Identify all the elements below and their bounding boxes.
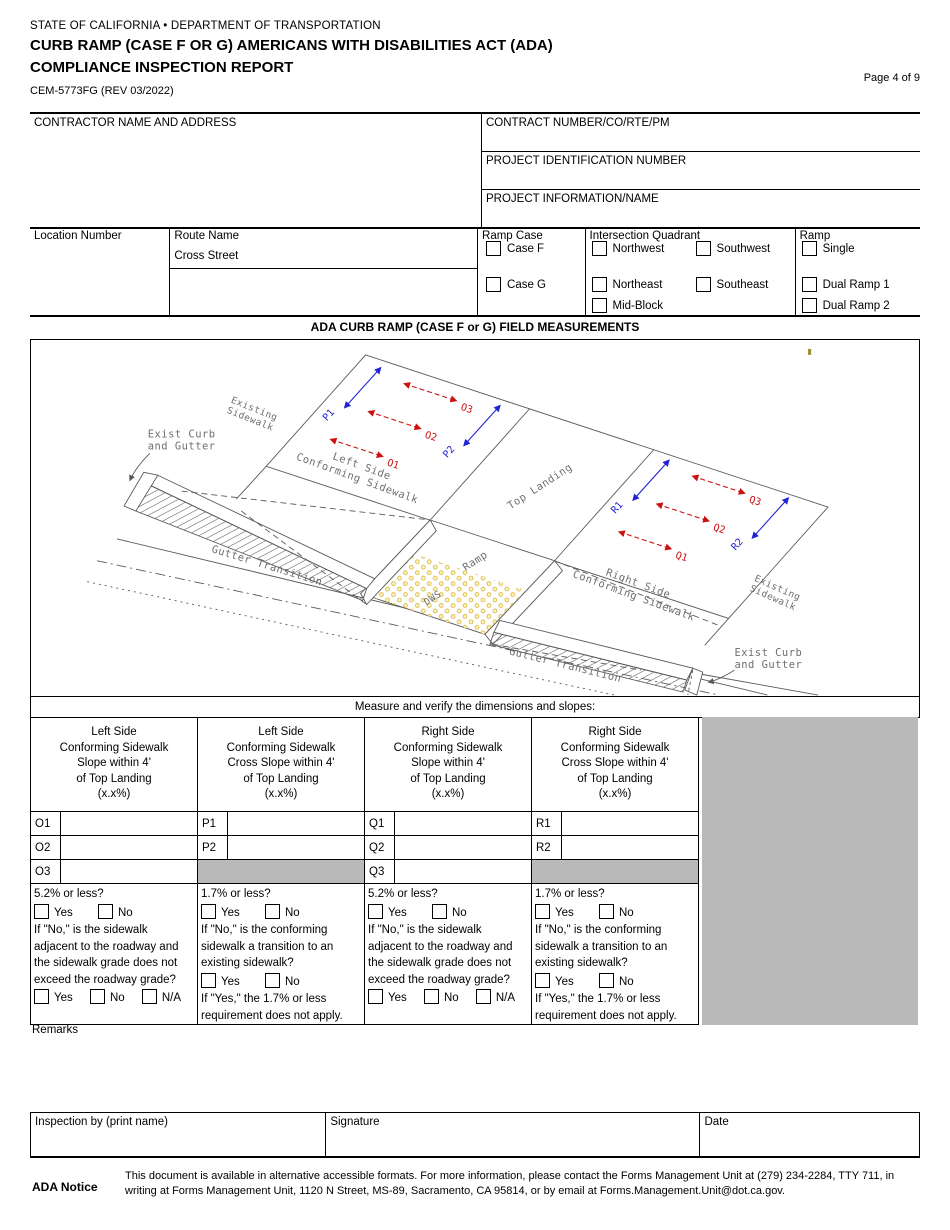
question-cell-right-cross: 1.7% or less? Yes No If "No," is the con… [532,884,698,1024]
row-label-q3: Q3 [365,860,394,883]
measurement-input-p2[interactable] [228,836,364,859]
project-id-field[interactable] [486,167,916,181]
measurement-input-o1[interactable] [61,812,197,835]
remarks-label: Remarks [32,1024,78,1036]
left-cross-q2-no-checkbox[interactable] [265,973,280,988]
right-cross-no-checkbox[interactable] [599,904,614,919]
inspection-by-label: Inspection by (print name) [35,1116,321,1128]
ramp-case-label: Ramp Case [478,227,585,242]
right-slope-q2-yes-checkbox[interactable] [368,989,383,1004]
southeast-label: Southeast [717,279,769,291]
form-title-line1: CURB RAMP (CASE F OR G) AMERICANS WITH D… [30,37,553,54]
southeast-checkbox[interactable] [696,277,711,292]
section-title: ADA CURB RAMP (CASE F or G) FIELD MEASUR… [0,320,950,334]
question-cell-left-cross: 1.7% or less? Yes No If "No," is the con… [198,884,364,1024]
question-text: If "No," is the conforming sidewalk a tr… [535,922,695,972]
measurement-input-r2[interactable] [562,836,698,859]
row-label-q1: Q1 [365,812,394,835]
contract-number-label: CONTRACT NUMBER/CO/RTE/PM [486,117,916,129]
single-label: Single [823,243,855,255]
page-number: Page 4 of 9 [864,72,920,84]
left-cross-no-checkbox[interactable] [265,904,280,919]
dual-ramp-1-label: Dual Ramp 1 [823,279,890,291]
date-field[interactable] [704,1128,915,1148]
dual-ramp-2-checkbox[interactable] [802,298,817,313]
agency-line: STATE OF CALIFORNIA • DEPARTMENT OF TRAN… [30,20,381,32]
question-text: 5.2% or less? [34,886,194,903]
checkbox-dual-ramp-2[interactable]: Dual Ramp 2 [802,298,890,313]
measurement-input-q1[interactable] [395,812,531,835]
left-cross-yes-checkbox[interactable] [201,904,216,919]
row-label-r1: R1 [532,812,561,835]
checkbox-northeast[interactable]: Northeast [592,277,663,292]
route-cross-divider [170,268,477,269]
measurement-input-o2[interactable] [61,836,197,859]
artifact-mark [808,349,811,355]
cross-street-label: Cross Street [170,245,477,267]
case-f-checkbox[interactable] [486,241,501,256]
dual-ramp-2-label: Dual Ramp 2 [823,300,890,312]
mid-block-label: Mid-Block [613,300,663,312]
quadrant-label: Intersection Quadrant [586,227,795,242]
col-header-left-slope: Left Side Conforming Sidewalk Slope with… [31,718,197,811]
case-g-checkbox[interactable] [486,277,501,292]
row-label-o1: O1 [31,812,60,835]
project-info-label: PROJECT INFORMATION/NAME [486,193,916,205]
col-header-right-cross: Right Side Conforming Sidewalk Cross Slo… [532,718,698,811]
left-slope-no-checkbox[interactable] [98,904,113,919]
checkbox-southeast[interactable]: Southeast [696,277,769,292]
form-title-line2: COMPLIANCE INSPECTION REPORT [30,59,293,76]
checkbox-mid-block[interactable]: Mid-Block [592,298,663,313]
project-info-field[interactable] [486,205,916,219]
row-label-p2: P2 [198,836,227,859]
row-label-q2: Q2 [365,836,394,859]
form-number: CEM-5773FG (REV 03/2022) [30,85,174,97]
question-text: 1.7% or less? [535,886,695,903]
left-slope-q2-yes-checkbox[interactable] [34,989,49,1004]
date-label: Date [704,1116,915,1128]
northeast-label: Northeast [613,279,663,291]
checkbox-single[interactable]: Single [802,241,855,256]
project-id-label: PROJECT IDENTIFICATION NUMBER [486,155,916,167]
right-cross-q2-no-checkbox[interactable] [599,973,614,988]
question-text: 1.7% or less? [201,886,361,903]
checkbox-dual-ramp-1[interactable]: Dual Ramp 1 [802,277,890,292]
svg-text:and Gutter: and Gutter [148,440,216,452]
inspection-by-field[interactable] [35,1128,321,1148]
remarks-field[interactable] [30,1040,920,1110]
checkbox-case-f[interactable]: Case F [486,241,544,256]
right-slope-yes-checkbox[interactable] [368,904,383,919]
signature-table: Inspection by (print name) Signature Dat… [30,1112,920,1158]
col-header-right-slope: Right Side Conforming Sidewalk Slope wit… [365,718,531,811]
southwest-checkbox[interactable] [696,241,711,256]
exist-curb-left-label: Exist Curb [148,428,216,440]
left-cross-q2-yes-checkbox[interactable] [201,973,216,988]
col-header-left-cross: Left Side Conforming Sidewalk Cross Slop… [198,718,364,811]
row-label-r2: R2 [532,836,561,859]
checkbox-northwest[interactable]: Northwest [592,241,665,256]
question-note: If "Yes," the 1.7% or less requirement d… [201,991,361,1024]
disabled-panel [702,717,918,1025]
contractor-name-field[interactable] [34,129,477,209]
measurement-input-r1[interactable] [562,812,698,835]
mid-block-checkbox[interactable] [592,298,607,313]
row-label-o3: O3 [31,860,60,883]
northwest-checkbox[interactable] [592,241,607,256]
left-slope-q2-na-checkbox[interactable] [142,989,157,1004]
row-label-o2: O2 [31,836,60,859]
right-slope-q2-no-checkbox[interactable] [424,989,439,1004]
exist-curb-right-label: Exist Curb [734,647,802,659]
route-name-label: Route Name [170,227,477,245]
right-slope-q2-na-checkbox[interactable] [476,989,491,1004]
northeast-checkbox[interactable] [592,277,607,292]
measure-instruction: Measure and verify the dimensions and sl… [30,696,920,718]
disabled-cell-r3 [532,860,698,883]
question-note: If "Yes," the 1.7% or less requirement d… [535,991,695,1024]
northwest-label: Northwest [613,243,665,255]
location-number-label: Location Number [34,230,165,242]
checkbox-southwest[interactable]: Southwest [696,241,771,256]
case-f-label: Case F [507,243,544,255]
case-g-label: Case G [507,279,546,291]
disabled-cell-p3 [198,860,364,883]
right-cross-yes-checkbox[interactable] [535,904,550,919]
single-checkbox[interactable] [802,241,817,256]
question-cell-right-slope: 5.2% or less? Yes No If "No," is the sid… [365,884,531,1024]
checkbox-case-g[interactable]: Case G [486,277,546,292]
contract-number-field[interactable] [486,129,916,143]
measurement-input-q3[interactable] [395,860,531,883]
location-row: Location Number Route Name Cross Street … [30,227,920,317]
measurement-input-q2[interactable] [395,836,531,859]
curb-ramp-diagram: Existing Sidewalk Exist Curb and Gutter … [30,339,920,697]
signature-label: Signature [330,1116,695,1128]
measurements-table: Left Side Conforming Sidewalk Slope with… [30,717,699,1025]
signature-field[interactable] [330,1128,695,1148]
right-cross-q2-yes-checkbox[interactable] [535,973,550,988]
dual-ramp-1-checkbox[interactable] [802,277,817,292]
location-number-field[interactable] [34,242,165,292]
row-label-p1: P1 [198,812,227,835]
left-slope-yes-checkbox[interactable] [34,904,49,919]
left-slope-q2-no-checkbox[interactable] [90,989,105,1004]
question-text: If "No," is the sidewalk adjacent to the… [368,922,528,988]
contract-info-table: CONTRACTOR NAME AND ADDRESS CONTRACT NUM… [30,112,920,229]
question-cell-left-slope: 5.2% or less? Yes No If "No," is the sid… [31,884,197,1024]
svg-text:and Gutter: and Gutter [734,659,802,671]
question-text: If "No," is the conforming sidewalk a tr… [201,922,361,972]
ada-notice-label: ADA Notice [32,1180,98,1194]
southwest-label: Southwest [717,243,771,255]
right-slope-no-checkbox[interactable] [432,904,447,919]
measurement-input-o3[interactable] [61,860,197,883]
contractor-name-label: CONTRACTOR NAME AND ADDRESS [34,117,477,129]
question-text: If "No," is the sidewalk adjacent to the… [34,922,194,988]
form-page: STATE OF CALIFORNIA • DEPARTMENT OF TRAN… [0,0,950,1230]
measurement-input-p1[interactable] [228,812,364,835]
question-text: 5.2% or less? [368,886,528,903]
ada-notice-text: This document is available in alternativ… [125,1169,925,1199]
ramp-label: Ramp [796,227,920,242]
